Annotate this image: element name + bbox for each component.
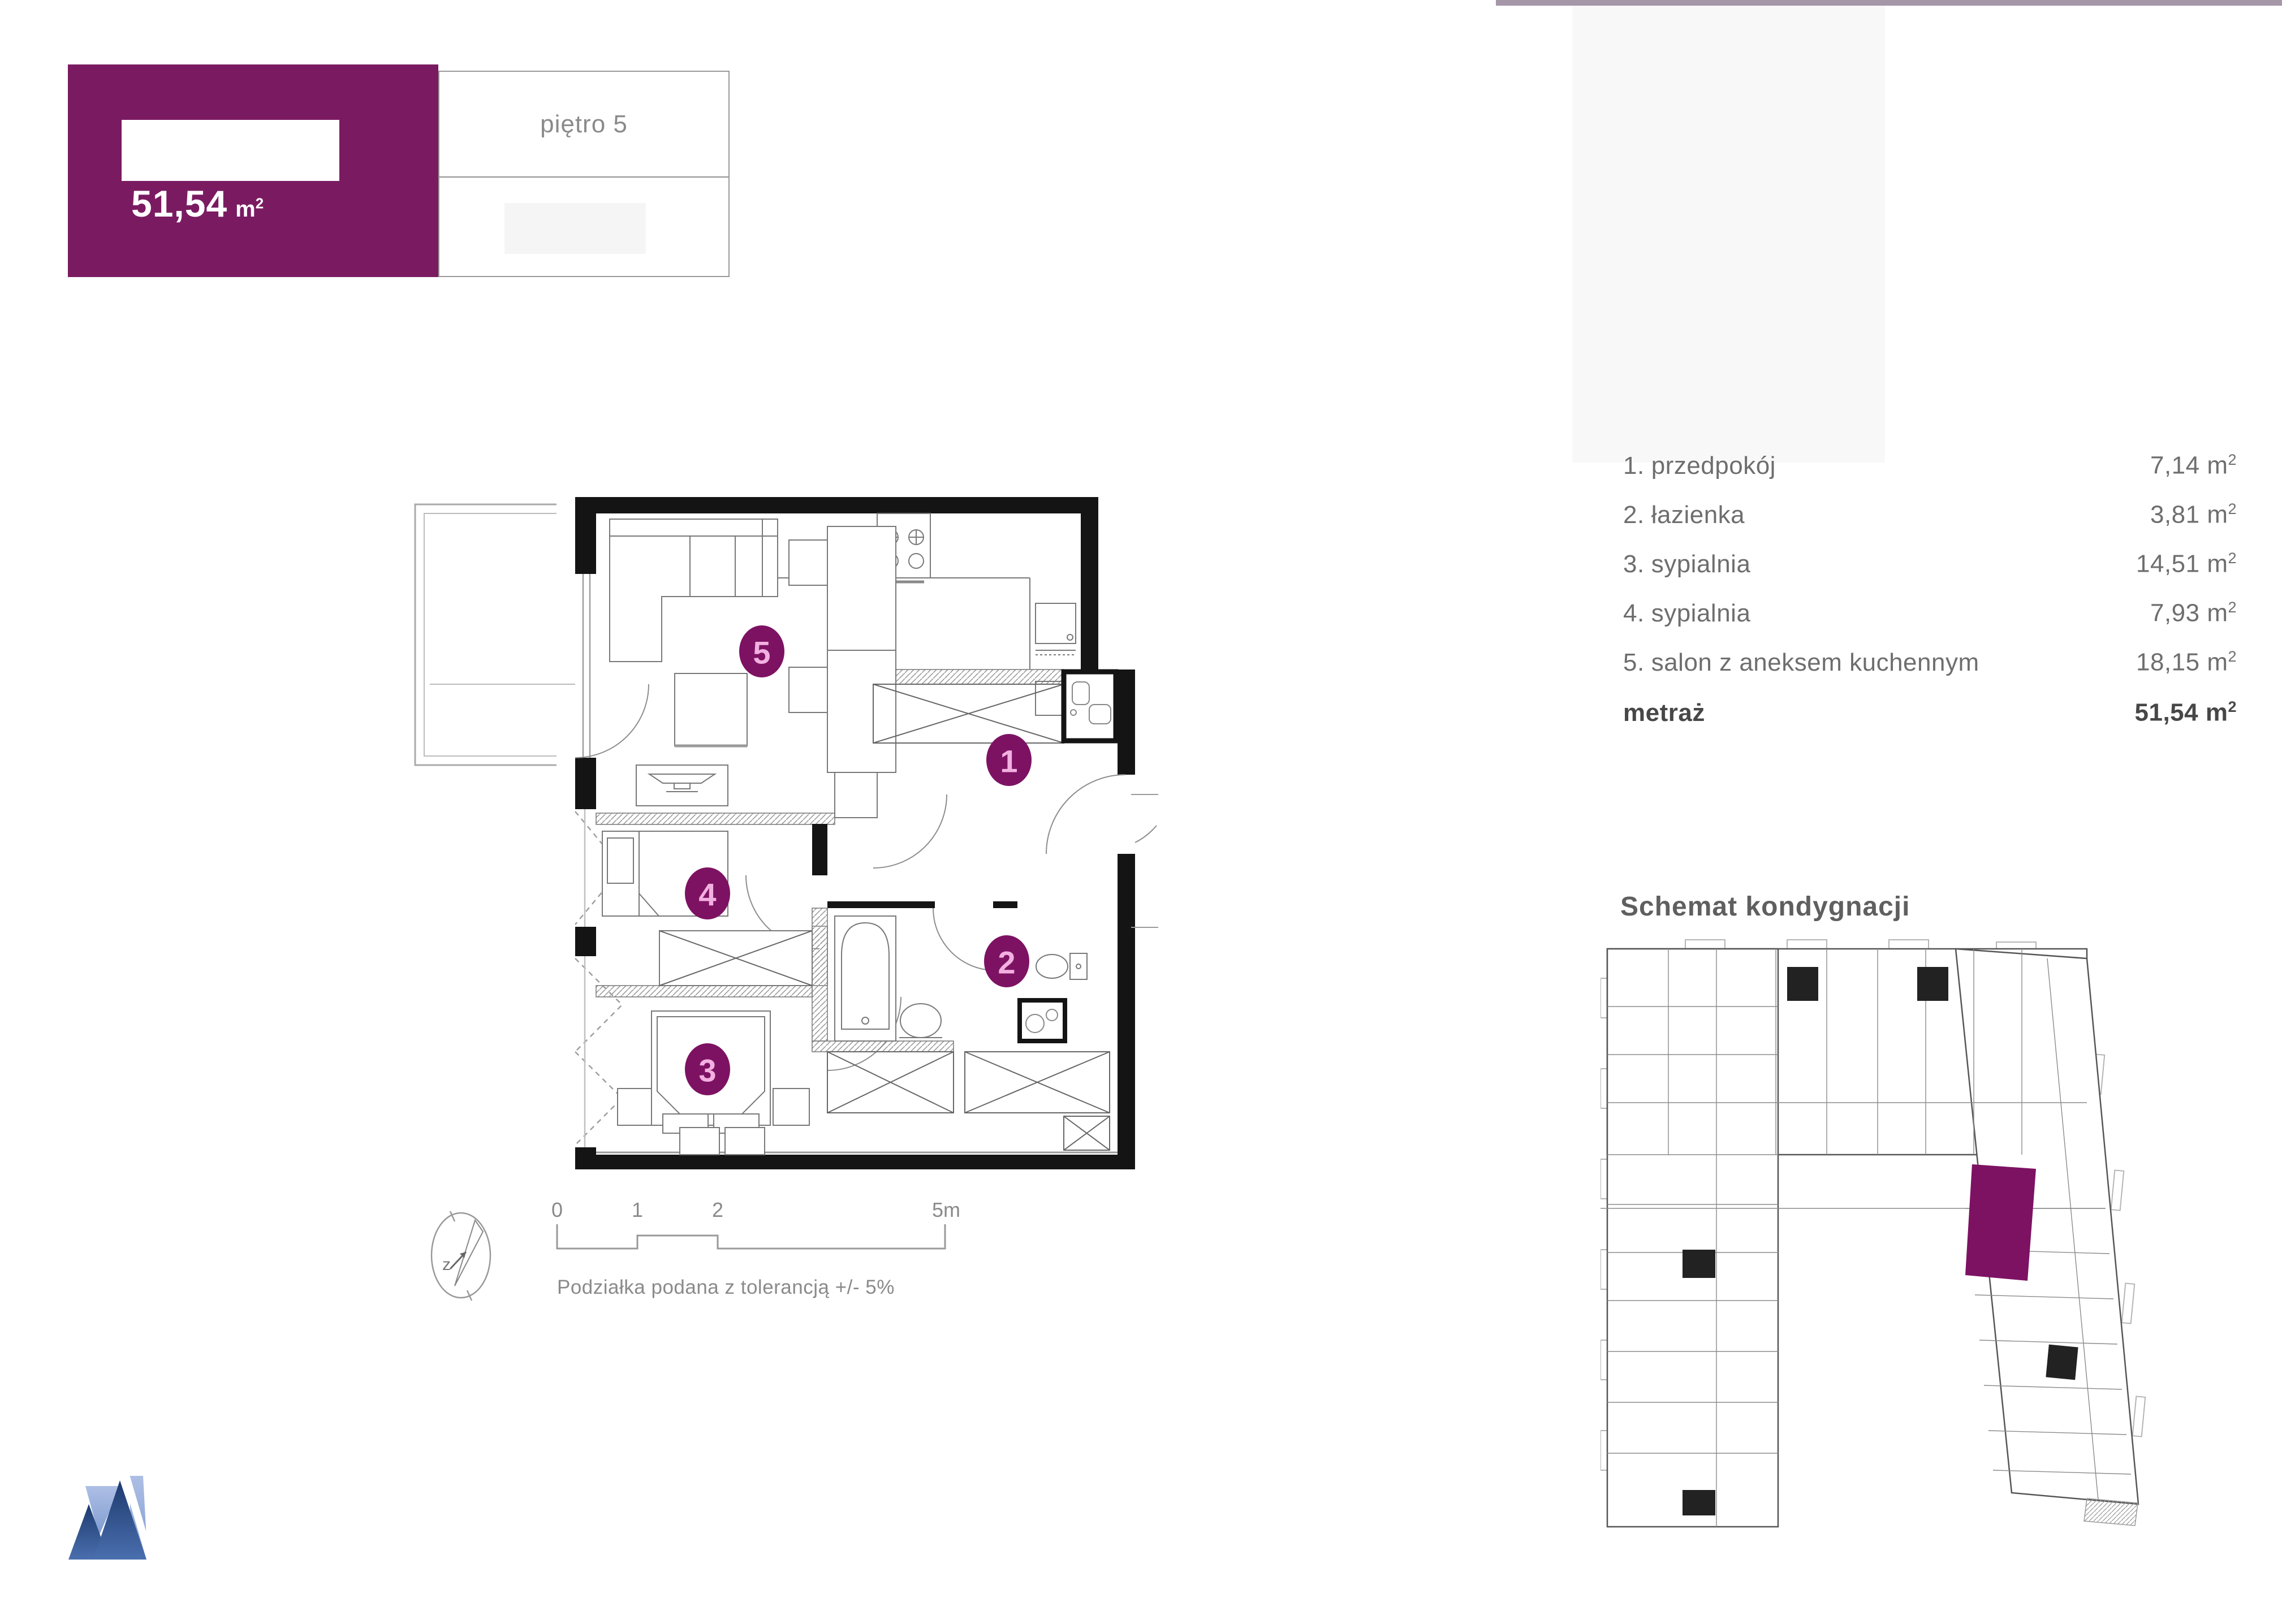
redacted-unit-number (122, 120, 339, 181)
washbasin (900, 1004, 941, 1038)
room-row: 1.przedpokój 7,14 m2 (1623, 451, 2237, 500)
badge-room-1: 1 (986, 734, 1032, 786)
svg-text:z: z (442, 1255, 451, 1274)
svg-text:0: 0 (551, 1198, 563, 1221)
floor-label: piętro 5 (540, 110, 628, 139)
top-accent-bar (1496, 0, 2282, 6)
total-area-row: metraż 51,54 m2 (1623, 698, 2237, 748)
area-sup: 2 (256, 195, 264, 212)
area-value: 51,54 (131, 183, 227, 224)
badge-room-4: 4 (685, 867, 730, 919)
floor-card-bottom-cell (439, 178, 728, 277)
floor-plan: 5 1 4 2 3 0 1 2 5m Podziałka podana z to… (396, 464, 1159, 1346)
left-wing (1607, 949, 1778, 1527)
room-row: 3.sypialnia 14,51 m2 (1623, 550, 2237, 599)
badge-room-5: 5 (739, 625, 784, 677)
brochure-page: 51,54m2 piętro 5 (0, 0, 2295, 1624)
svg-text:5: 5 (753, 635, 770, 671)
svg-text:1: 1 (632, 1198, 643, 1221)
badge-room-3: 3 (685, 1043, 730, 1095)
apartment-area-card: 51,54m2 (68, 64, 438, 277)
pouf (675, 673, 747, 746)
scheme-title: Schemat kondygnacji (1620, 891, 1910, 922)
room-list: 1.przedpokój 7,14 m2 2.łazienka 3,81 m2 … (1623, 451, 2237, 748)
corridor-marks (1131, 794, 1158, 927)
floor-cell: piętro 5 (439, 72, 728, 178)
room-row: 5.salon z aneksem kuchennym 18,15 m2 (1623, 648, 2237, 697)
area-unit: m (235, 197, 256, 222)
nightstand (618, 1089, 652, 1125)
room-row: 2.łazienka 3,81 m2 (1623, 500, 2237, 550)
svg-text:2: 2 (712, 1198, 723, 1221)
svg-text:1: 1 (1000, 744, 1017, 779)
floor-card: piętro 5 (438, 71, 730, 277)
kitchen-sink-closet (1064, 672, 1116, 741)
svg-text:3: 3 (698, 1053, 716, 1089)
developer-logo (65, 1475, 161, 1565)
svg-text:4: 4 (698, 877, 716, 913)
building-scheme (1601, 933, 2257, 1555)
apartment-area: 51,54m2 (131, 182, 264, 225)
chair (789, 540, 827, 585)
redacted-logo-area (504, 203, 646, 254)
svg-text:5m: 5m (932, 1198, 960, 1221)
oven (1036, 603, 1076, 643)
storage-wardrobes (827, 1052, 1110, 1150)
scheme-hatch-area (2084, 1498, 2138, 1526)
bench (680, 1128, 719, 1155)
bench (725, 1128, 765, 1155)
scale-bar: 0 1 2 5m Podziałka podana z tolerancją +… (551, 1198, 960, 1298)
nightstand (773, 1089, 809, 1125)
washer-closet (1020, 1000, 1065, 1041)
chair (789, 667, 827, 712)
badge-room-2: 2 (984, 935, 1029, 987)
balcony (415, 504, 557, 765)
room-row: 4.sypialnia 7,93 m2 (1623, 599, 2237, 648)
pillow (607, 838, 633, 883)
tv-stand (636, 765, 728, 806)
svg-text:2: 2 (998, 945, 1015, 981)
highlighted-unit (1965, 1164, 2036, 1281)
faded-background-block (1572, 6, 1885, 463)
scheme-wings (1607, 949, 2138, 1527)
toilet (1036, 954, 1068, 978)
dining-table (789, 526, 896, 818)
chair (835, 772, 877, 818)
compass-icon: z (432, 1211, 490, 1301)
scale-note: Podziałka podana z tolerancją +/- 5% (557, 1276, 895, 1298)
